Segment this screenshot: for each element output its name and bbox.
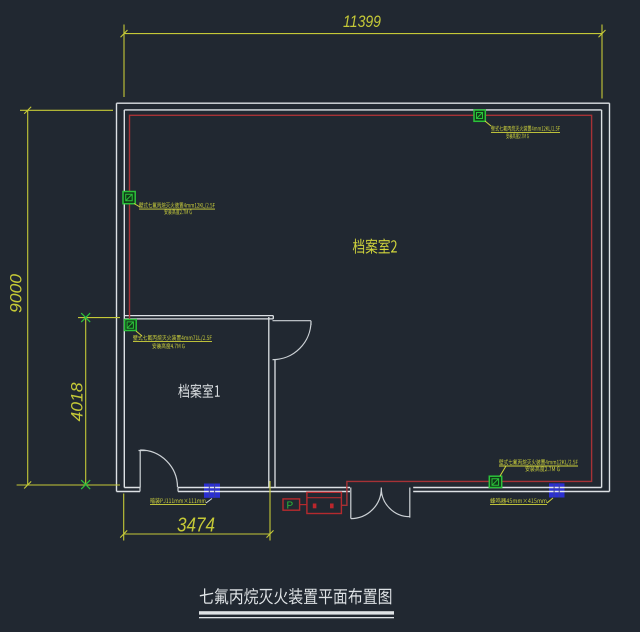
svg-text:9000: 9000 <box>7 273 26 313</box>
svg-text:11399: 11399 <box>343 13 381 31</box>
svg-text:3474: 3474 <box>177 515 215 537</box>
svg-text:P: P <box>287 501 294 512</box>
svg-text:4018: 4018 <box>68 382 87 422</box>
